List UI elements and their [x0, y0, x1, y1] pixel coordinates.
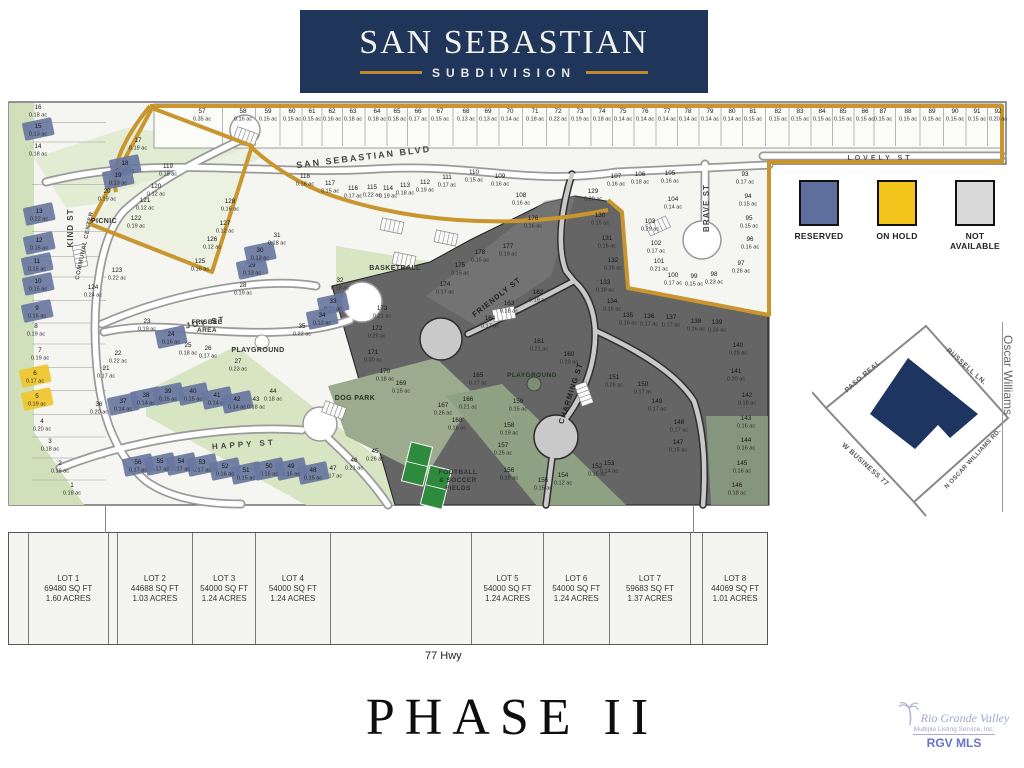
lot-info-line: 1.01 ACRES	[713, 594, 758, 604]
lot-info-line: 1.24 ACRES	[270, 594, 315, 604]
lot-info-line: LOT 4	[282, 574, 304, 584]
lot-info-line: 1.60 ACRES	[46, 594, 91, 604]
dark-playground-circle	[527, 377, 541, 391]
legend-item-on-hold: ON HOLD	[866, 180, 928, 251]
lot-column-lot-1: LOT 169480 SQ FT1.60 ACRES	[29, 533, 109, 644]
lot-column-lot-4: LOT 454000 SQ FT1.24 ACRES	[256, 533, 331, 644]
oscar-williams-road-label: Oscar Williams	[1001, 319, 1015, 431]
inset-road-ext-1	[812, 392, 826, 408]
legend-swatch	[877, 180, 917, 226]
watermark-line3: RGV MLS	[913, 734, 996, 750]
legend-swatch	[955, 180, 995, 226]
lot-column-lot-3: LOT 354000 SQ FT1.24 ACRES	[193, 533, 256, 644]
lot-column-lot-5: LOT 554000 SQ FT1.24 ACRES	[472, 533, 544, 644]
amenity-label: PLAYGROUND	[507, 372, 557, 379]
subdivision-subtitle-row: SUBDIVISION	[360, 66, 648, 80]
amenity-label: DOG PARK	[335, 395, 375, 402]
lot-info-line: 54000 SQ FT	[484, 584, 532, 594]
gold-rule-right	[586, 71, 648, 74]
lot-info-line: LOT 2	[144, 574, 166, 584]
legend-item-reserved: RESERVED	[788, 180, 850, 251]
lot-column-lot-2: LOT 244688 SQ FT1.03 ACRES	[118, 533, 194, 644]
lot-info-line: 1.37 ACRES	[628, 594, 673, 604]
legend-label: NOT AVAILABLE	[944, 231, 1006, 251]
lot-info-line: 1.03 ACRES	[132, 594, 177, 604]
commercial-lots-table: LOT 169480 SQ FT1.60 ACRESLOT 244688 SQ …	[8, 532, 768, 645]
lot-info-line: 59683 SQ FT	[626, 584, 674, 594]
watermark-line2: Multiple Listing Service, Inc.	[914, 726, 995, 733]
rgv-mls-watermark: Rio Grande Valley Multiple Listing Servi…	[888, 702, 1020, 750]
lot-info-line: LOT 3	[213, 574, 235, 584]
spacer-column	[331, 533, 472, 644]
lot-info-line: 1.24 ACRES	[554, 594, 599, 604]
phase-title: PHASE II	[0, 688, 1024, 747]
legend-swatch	[799, 180, 839, 226]
watermark-line1: Rio Grande Valley	[921, 711, 1010, 726]
legend: RESERVEDON HOLDNOT AVAILABLE	[788, 180, 1013, 251]
spacer-column	[691, 533, 703, 644]
lot-info-line: 44069 SQ FT	[711, 584, 759, 594]
lot-column-lot-6: LOT 654000 SQ FT1.24 ACRES	[544, 533, 610, 644]
amenity-label: PLAYGROUND	[231, 347, 284, 354]
highway-label: 77 Hwy	[425, 650, 462, 662]
legend-label: ON HOLD	[876, 231, 917, 241]
legend-item-not-available: NOT AVAILABLE	[944, 180, 1006, 251]
street-label: LOVELY ST	[847, 155, 912, 162]
amenity-label: PICNIC	[91, 218, 117, 225]
table-connector-left	[105, 505, 106, 533]
lot-info-line: LOT 8	[724, 574, 746, 584]
lot-info-line: 54000 SQ FT	[269, 584, 317, 594]
location-inset-map: PASO REAL RUSSELL LN. N OSCAR WILLIAMS R…	[812, 318, 1017, 523]
palm-tree-icon	[899, 702, 919, 726]
street-label: BRAVE ST	[702, 184, 711, 232]
lot-info-line: 1.24 ACRES	[485, 594, 530, 604]
lot-column-lot-7: LOT 759683 SQ FT1.37 ACRES	[610, 533, 692, 644]
street-label: KIND ST	[66, 209, 75, 248]
subdivision-subtitle: SUBDIVISION	[432, 66, 576, 80]
friendly-culdesac	[420, 318, 462, 360]
table-connector-right	[693, 505, 694, 533]
lot-info-line: LOT 5	[496, 574, 518, 584]
subdivision-title: SAN SEBASTIAN	[359, 24, 649, 62]
lot-info-line: 54000 SQ FT	[552, 584, 600, 594]
lot-info-line: LOT 7	[639, 574, 661, 584]
plat-map-page: SAN SEBASTIAN SUBDIVISION	[0, 0, 1024, 768]
lot-info-line: 44688 SQ FT	[131, 584, 179, 594]
lot-info-line: LOT 1	[57, 574, 79, 584]
spacer-column	[109, 533, 118, 644]
lot-info-line: 54000 SQ FT	[200, 584, 248, 594]
legend-label: RESERVED	[794, 231, 843, 241]
lot-info-line: LOT 6	[565, 574, 587, 584]
spacer-column	[9, 533, 29, 644]
gold-rule-left	[360, 71, 422, 74]
amenity-label: BASKETBALL	[369, 265, 421, 272]
lot-info-line: 69480 SQ FT	[44, 584, 92, 594]
lot-column-lot-8: LOT 844069 SQ FT1.01 ACRES	[703, 533, 767, 644]
lot-info-line: 1.24 ACRES	[202, 594, 247, 604]
subdivision-logo: SAN SEBASTIAN SUBDIVISION	[300, 10, 708, 93]
inset-road-ext-2	[914, 502, 926, 516]
